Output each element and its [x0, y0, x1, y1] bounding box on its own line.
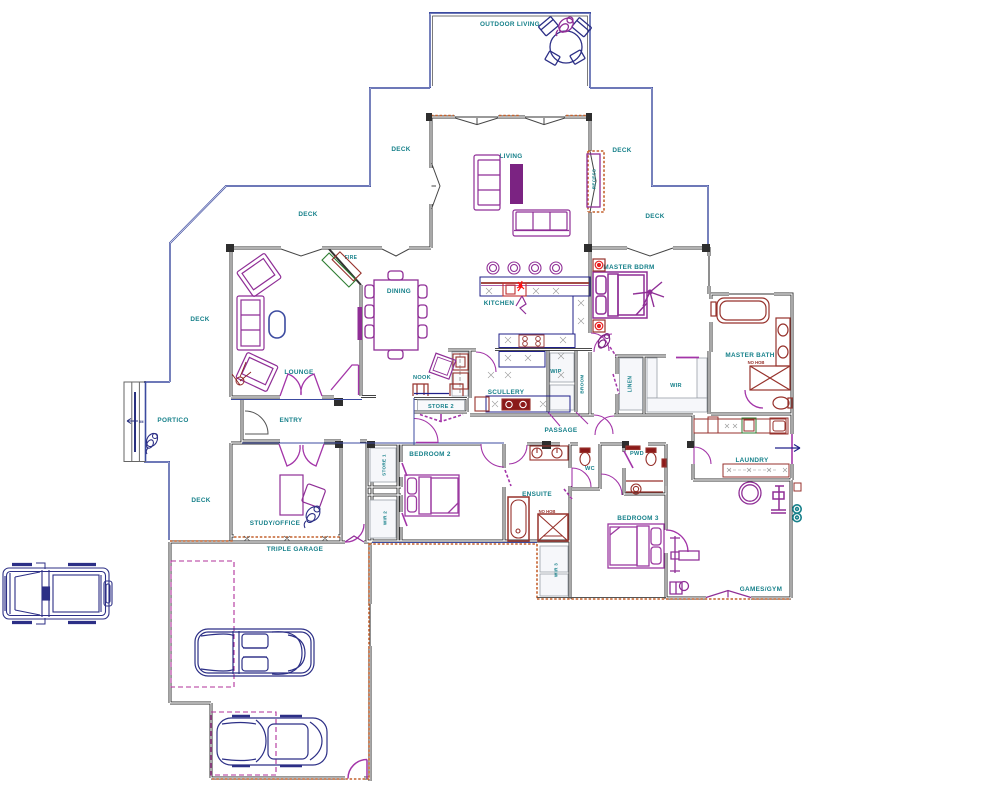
- svg-text:NO HOB: NO HOB: [748, 360, 765, 365]
- svg-text:BROOM: BROOM: [580, 374, 585, 393]
- svg-text:PASSAGE: PASSAGE: [545, 427, 578, 434]
- svg-text:TRIPLE GARAGE: TRIPLE GARAGE: [267, 546, 324, 553]
- svg-text:OUTDOOR LIVING: OUTDOOR LIVING: [480, 21, 540, 28]
- svg-text:LIVING: LIVING: [499, 153, 522, 160]
- svg-text:WIR 2: WIR 2: [383, 511, 388, 525]
- svg-text:MASTER BATH: MASTER BATH: [725, 352, 774, 359]
- svg-text:DECK: DECK: [298, 211, 317, 218]
- svg-text:DECK: DECK: [645, 213, 664, 220]
- svg-text:DECK: DECK: [190, 316, 209, 323]
- svg-text:PORTICO: PORTICO: [157, 417, 188, 424]
- svg-text:WC: WC: [585, 466, 595, 472]
- svg-text:DECK: DECK: [391, 146, 410, 153]
- svg-text:STORE 1: STORE 1: [382, 454, 387, 476]
- svg-text:WIR 3: WIR 3: [554, 563, 559, 577]
- svg-text:GAMES/GYM: GAMES/GYM: [740, 586, 782, 593]
- svg-text:LINEN: LINEN: [628, 376, 634, 393]
- svg-text:STORE 2: STORE 2: [428, 404, 454, 410]
- svg-text:DINING: DINING: [387, 288, 411, 295]
- svg-text:NOOK: NOOK: [413, 375, 431, 381]
- svg-text:PWD: PWD: [630, 451, 644, 457]
- svg-text:DECK: DECK: [612, 147, 631, 154]
- svg-text:KITCHEN: KITCHEN: [484, 300, 515, 307]
- svg-text:STUDY/OFFICE: STUDY/OFFICE: [250, 520, 301, 527]
- svg-text:WIR: WIR: [670, 383, 682, 389]
- svg-text:BEDROOM 2: BEDROOM 2: [409, 451, 451, 458]
- svg-text:DECK: DECK: [191, 497, 210, 504]
- svg-text:ENTRY: ENTRY: [280, 417, 303, 424]
- svg-text:LAUNDRY: LAUNDRY: [735, 457, 769, 464]
- svg-text:DN: DN: [139, 421, 144, 425]
- svg-text:BEDROOM 3: BEDROOM 3: [617, 515, 659, 522]
- svg-text:RECESS: RECESS: [592, 169, 597, 189]
- svg-text:MASTER BDRM: MASTER BDRM: [603, 264, 654, 271]
- svg-text:SCULLERY: SCULLERY: [488, 389, 525, 396]
